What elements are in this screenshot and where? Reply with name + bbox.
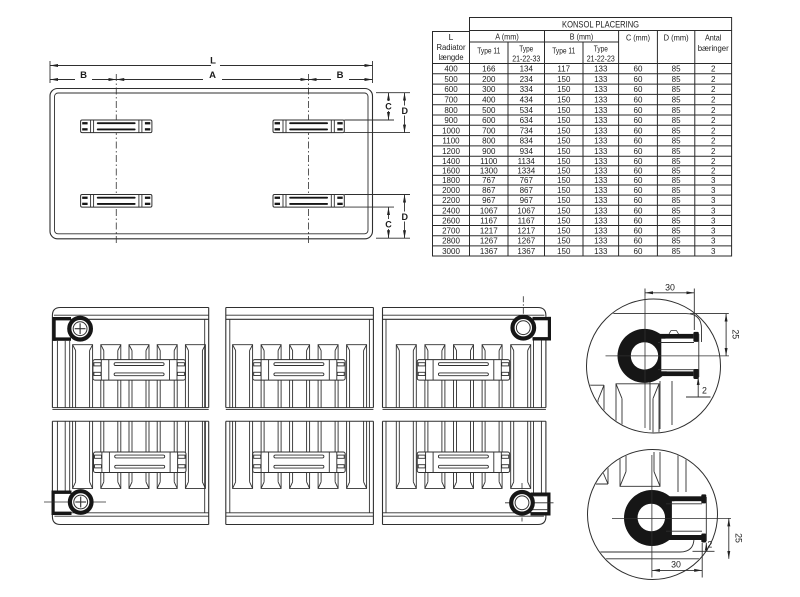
svg-text:133: 133 bbox=[594, 137, 608, 146]
svg-text:133: 133 bbox=[594, 227, 608, 236]
svg-text:150: 150 bbox=[557, 237, 571, 246]
svg-text:25: 25 bbox=[733, 533, 743, 543]
svg-text:150: 150 bbox=[557, 227, 571, 236]
svg-text:133: 133 bbox=[594, 147, 608, 156]
svg-text:85: 85 bbox=[672, 85, 681, 94]
svg-text:60: 60 bbox=[634, 196, 643, 205]
svg-text:133: 133 bbox=[594, 206, 608, 215]
svg-text:D: D bbox=[401, 106, 408, 116]
svg-text:3: 3 bbox=[711, 186, 716, 195]
svg-text:21-22-33: 21-22-33 bbox=[512, 54, 540, 64]
svg-text:133: 133 bbox=[594, 126, 608, 135]
svg-text:85: 85 bbox=[672, 75, 681, 84]
svg-text:600: 600 bbox=[482, 116, 496, 125]
svg-text:2: 2 bbox=[711, 75, 716, 84]
svg-text:133: 133 bbox=[594, 95, 608, 104]
svg-text:867: 867 bbox=[520, 186, 534, 195]
svg-text:133: 133 bbox=[594, 75, 608, 84]
svg-text:L: L bbox=[210, 56, 216, 67]
svg-text:21-22-23: 21-22-23 bbox=[587, 54, 615, 64]
svg-text:2800: 2800 bbox=[442, 237, 460, 246]
svg-text:133: 133 bbox=[594, 157, 608, 166]
svg-text:D: D bbox=[401, 212, 408, 222]
svg-text:1217: 1217 bbox=[480, 227, 498, 236]
svg-text:133: 133 bbox=[594, 216, 608, 225]
svg-text:133: 133 bbox=[594, 186, 608, 195]
svg-text:967: 967 bbox=[482, 196, 496, 205]
svg-text:967: 967 bbox=[520, 196, 534, 205]
svg-text:KONSOL PLACERING: KONSOL PLACERING bbox=[562, 19, 639, 29]
svg-text:534: 534 bbox=[520, 106, 534, 115]
svg-text:60: 60 bbox=[634, 147, 643, 156]
svg-text:3: 3 bbox=[711, 216, 716, 225]
svg-text:133: 133 bbox=[594, 247, 608, 256]
svg-text:85: 85 bbox=[672, 237, 681, 246]
svg-text:150: 150 bbox=[557, 157, 571, 166]
svg-text:150: 150 bbox=[557, 216, 571, 225]
svg-text:3: 3 bbox=[711, 247, 716, 256]
svg-text:300: 300 bbox=[482, 85, 496, 94]
svg-text:Type: Type bbox=[594, 44, 608, 54]
svg-text:1217: 1217 bbox=[517, 227, 535, 236]
svg-text:600: 600 bbox=[444, 85, 458, 94]
svg-text:150: 150 bbox=[557, 186, 571, 195]
svg-text:C (mm): C (mm) bbox=[626, 33, 650, 43]
svg-text:C: C bbox=[385, 220, 392, 230]
svg-text:60: 60 bbox=[634, 176, 643, 185]
svg-text:60: 60 bbox=[634, 95, 643, 104]
svg-text:334: 334 bbox=[520, 85, 534, 94]
svg-text:150: 150 bbox=[557, 206, 571, 215]
svg-text:85: 85 bbox=[672, 157, 681, 166]
svg-text:25: 25 bbox=[731, 329, 741, 339]
svg-text:400: 400 bbox=[482, 95, 496, 104]
svg-text:60: 60 bbox=[634, 186, 643, 195]
svg-text:2: 2 bbox=[711, 137, 716, 146]
svg-text:85: 85 bbox=[672, 116, 681, 125]
svg-text:85: 85 bbox=[672, 216, 681, 225]
svg-text:60: 60 bbox=[634, 157, 643, 166]
svg-text:150: 150 bbox=[557, 196, 571, 205]
svg-text:150: 150 bbox=[557, 247, 571, 256]
svg-text:133: 133 bbox=[594, 65, 608, 74]
svg-text:1200: 1200 bbox=[442, 147, 460, 156]
svg-text:A: A bbox=[209, 70, 216, 81]
svg-text:85: 85 bbox=[672, 167, 681, 176]
svg-text:85: 85 bbox=[672, 247, 681, 256]
svg-text:150: 150 bbox=[557, 126, 571, 135]
svg-text:400: 400 bbox=[444, 65, 458, 74]
svg-text:500: 500 bbox=[482, 106, 496, 115]
svg-text:60: 60 bbox=[634, 227, 643, 236]
svg-text:150: 150 bbox=[557, 75, 571, 84]
svg-text:B: B bbox=[337, 70, 344, 81]
svg-text:85: 85 bbox=[672, 106, 681, 115]
svg-text:134: 134 bbox=[520, 65, 534, 74]
svg-text:800: 800 bbox=[444, 106, 458, 115]
svg-text:A (mm): A (mm) bbox=[495, 32, 519, 42]
svg-text:85: 85 bbox=[672, 95, 681, 104]
svg-text:60: 60 bbox=[634, 65, 643, 74]
svg-text:60: 60 bbox=[634, 237, 643, 246]
svg-text:900: 900 bbox=[444, 116, 458, 125]
svg-text:Antal: Antal bbox=[705, 33, 722, 43]
svg-text:60: 60 bbox=[634, 206, 643, 215]
svg-text:1334: 1334 bbox=[517, 167, 535, 176]
svg-text:85: 85 bbox=[672, 196, 681, 205]
svg-text:767: 767 bbox=[520, 176, 534, 185]
svg-text:133: 133 bbox=[594, 116, 608, 125]
svg-text:1000: 1000 bbox=[442, 126, 460, 135]
svg-text:1067: 1067 bbox=[480, 206, 498, 215]
svg-text:Radiator: Radiator bbox=[437, 42, 466, 52]
svg-text:60: 60 bbox=[634, 106, 643, 115]
svg-text:1800: 1800 bbox=[442, 176, 460, 185]
svg-text:30: 30 bbox=[671, 560, 681, 570]
svg-text:133: 133 bbox=[594, 85, 608, 94]
svg-text:D (mm): D (mm) bbox=[664, 33, 689, 43]
svg-text:60: 60 bbox=[634, 126, 643, 135]
svg-text:85: 85 bbox=[672, 65, 681, 74]
svg-text:2000: 2000 bbox=[442, 186, 460, 195]
svg-text:150: 150 bbox=[557, 95, 571, 104]
svg-text:3000: 3000 bbox=[442, 247, 460, 256]
svg-text:133: 133 bbox=[594, 167, 608, 176]
svg-text:166: 166 bbox=[482, 65, 496, 74]
svg-text:3: 3 bbox=[711, 227, 716, 236]
svg-text:150: 150 bbox=[557, 176, 571, 185]
svg-text:bæringer: bæringer bbox=[698, 43, 729, 53]
svg-text:3: 3 bbox=[711, 237, 716, 246]
svg-text:200: 200 bbox=[482, 75, 496, 84]
svg-text:1367: 1367 bbox=[480, 247, 498, 256]
svg-text:434: 434 bbox=[520, 95, 534, 104]
svg-text:60: 60 bbox=[634, 85, 643, 94]
svg-text:længde: længde bbox=[439, 52, 464, 62]
svg-text:B (mm): B (mm) bbox=[570, 32, 594, 42]
svg-text:3: 3 bbox=[711, 176, 716, 185]
svg-text:2: 2 bbox=[711, 157, 716, 166]
svg-text:3: 3 bbox=[711, 196, 716, 205]
svg-text:Type 11: Type 11 bbox=[477, 46, 500, 56]
svg-text:1600: 1600 bbox=[442, 167, 460, 176]
svg-text:2: 2 bbox=[711, 167, 716, 176]
svg-text:1167: 1167 bbox=[518, 216, 536, 225]
svg-text:934: 934 bbox=[520, 147, 534, 156]
svg-text:2700: 2700 bbox=[442, 227, 460, 236]
svg-text:2: 2 bbox=[711, 85, 716, 94]
svg-text:1100: 1100 bbox=[442, 137, 460, 146]
svg-text:1267: 1267 bbox=[517, 237, 535, 246]
svg-text:867: 867 bbox=[482, 186, 496, 195]
svg-text:2: 2 bbox=[702, 386, 707, 396]
svg-text:2: 2 bbox=[707, 540, 712, 550]
svg-text:133: 133 bbox=[594, 196, 608, 205]
svg-text:60: 60 bbox=[634, 216, 643, 225]
svg-text:150: 150 bbox=[557, 167, 571, 176]
svg-text:60: 60 bbox=[634, 247, 643, 256]
svg-text:85: 85 bbox=[672, 206, 681, 215]
svg-text:60: 60 bbox=[634, 116, 643, 125]
svg-text:2: 2 bbox=[711, 147, 716, 156]
svg-text:85: 85 bbox=[672, 186, 681, 195]
svg-text:C: C bbox=[385, 102, 392, 112]
svg-text:1167: 1167 bbox=[480, 216, 498, 225]
svg-text:133: 133 bbox=[594, 106, 608, 115]
svg-text:150: 150 bbox=[557, 85, 571, 94]
svg-text:3: 3 bbox=[711, 206, 716, 215]
svg-text:500: 500 bbox=[444, 75, 458, 84]
svg-text:1300: 1300 bbox=[480, 167, 498, 176]
svg-text:60: 60 bbox=[634, 167, 643, 176]
svg-text:85: 85 bbox=[672, 147, 681, 156]
svg-text:85: 85 bbox=[672, 176, 681, 185]
svg-text:1134: 1134 bbox=[518, 157, 536, 166]
svg-text:85: 85 bbox=[672, 126, 681, 135]
svg-text:2600: 2600 bbox=[442, 216, 460, 225]
svg-text:900: 900 bbox=[482, 147, 496, 156]
svg-text:60: 60 bbox=[634, 75, 643, 84]
svg-text:1267: 1267 bbox=[480, 237, 498, 246]
svg-text:133: 133 bbox=[594, 237, 608, 246]
svg-text:800: 800 bbox=[482, 137, 496, 146]
svg-text:L: L bbox=[449, 32, 454, 42]
svg-text:1100: 1100 bbox=[480, 157, 498, 166]
svg-text:150: 150 bbox=[557, 147, 571, 156]
svg-text:2: 2 bbox=[711, 116, 716, 125]
svg-text:767: 767 bbox=[482, 176, 496, 185]
svg-text:B: B bbox=[80, 70, 87, 81]
svg-text:30: 30 bbox=[665, 282, 675, 292]
svg-text:Type: Type bbox=[519, 44, 533, 54]
svg-text:1067: 1067 bbox=[517, 206, 535, 215]
svg-text:85: 85 bbox=[672, 227, 681, 236]
svg-text:1400: 1400 bbox=[442, 157, 460, 166]
svg-text:734: 734 bbox=[520, 126, 534, 135]
svg-text:234: 234 bbox=[520, 75, 534, 84]
svg-text:834: 834 bbox=[520, 137, 534, 146]
svg-text:1367: 1367 bbox=[517, 247, 535, 256]
svg-text:150: 150 bbox=[557, 137, 571, 146]
svg-text:60: 60 bbox=[634, 137, 643, 146]
svg-text:150: 150 bbox=[557, 106, 571, 115]
svg-text:700: 700 bbox=[444, 95, 458, 104]
svg-text:2: 2 bbox=[711, 95, 716, 104]
svg-text:700: 700 bbox=[482, 126, 496, 135]
svg-text:2200: 2200 bbox=[442, 196, 460, 205]
svg-text:150: 150 bbox=[557, 116, 571, 125]
svg-text:133: 133 bbox=[594, 176, 608, 185]
svg-text:Type 11: Type 11 bbox=[552, 46, 575, 56]
svg-text:2: 2 bbox=[711, 65, 716, 74]
svg-text:85: 85 bbox=[672, 137, 681, 146]
svg-text:117: 117 bbox=[557, 65, 570, 74]
svg-text:2400: 2400 bbox=[442, 206, 460, 215]
svg-text:634: 634 bbox=[520, 116, 534, 125]
svg-text:2: 2 bbox=[711, 126, 716, 135]
svg-text:2: 2 bbox=[711, 106, 716, 115]
